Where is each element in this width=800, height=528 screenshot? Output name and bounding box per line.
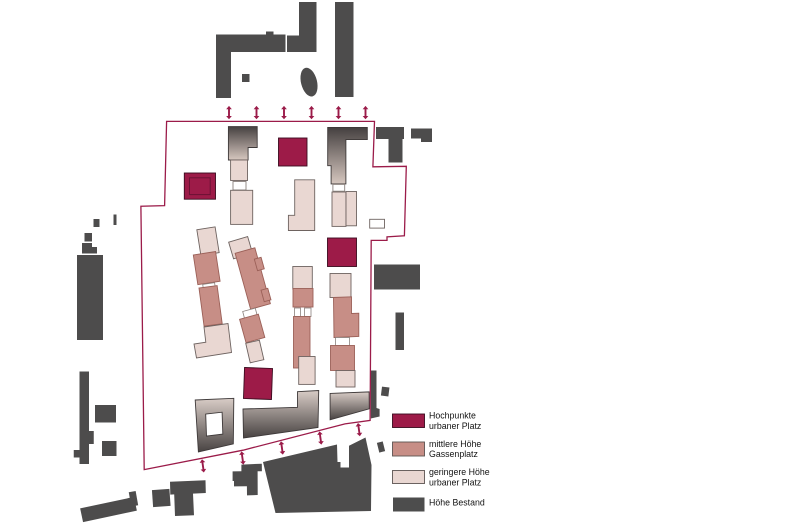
svg-text:geringere Höhe: geringere Höhe	[429, 467, 490, 477]
svg-text:mittlere Höhe: mittlere Höhe	[429, 439, 481, 449]
svg-text:Gassenplatz: Gassenplatz	[429, 449, 478, 459]
svg-text:urbaner Platz: urbaner Platz	[429, 421, 481, 431]
svg-text:Höhe Bestand: Höhe Bestand	[429, 498, 485, 508]
svg-text:urbaner Platz: urbaner Platz	[429, 477, 481, 487]
svg-text:Hochpunkte: Hochpunkte	[429, 411, 476, 421]
